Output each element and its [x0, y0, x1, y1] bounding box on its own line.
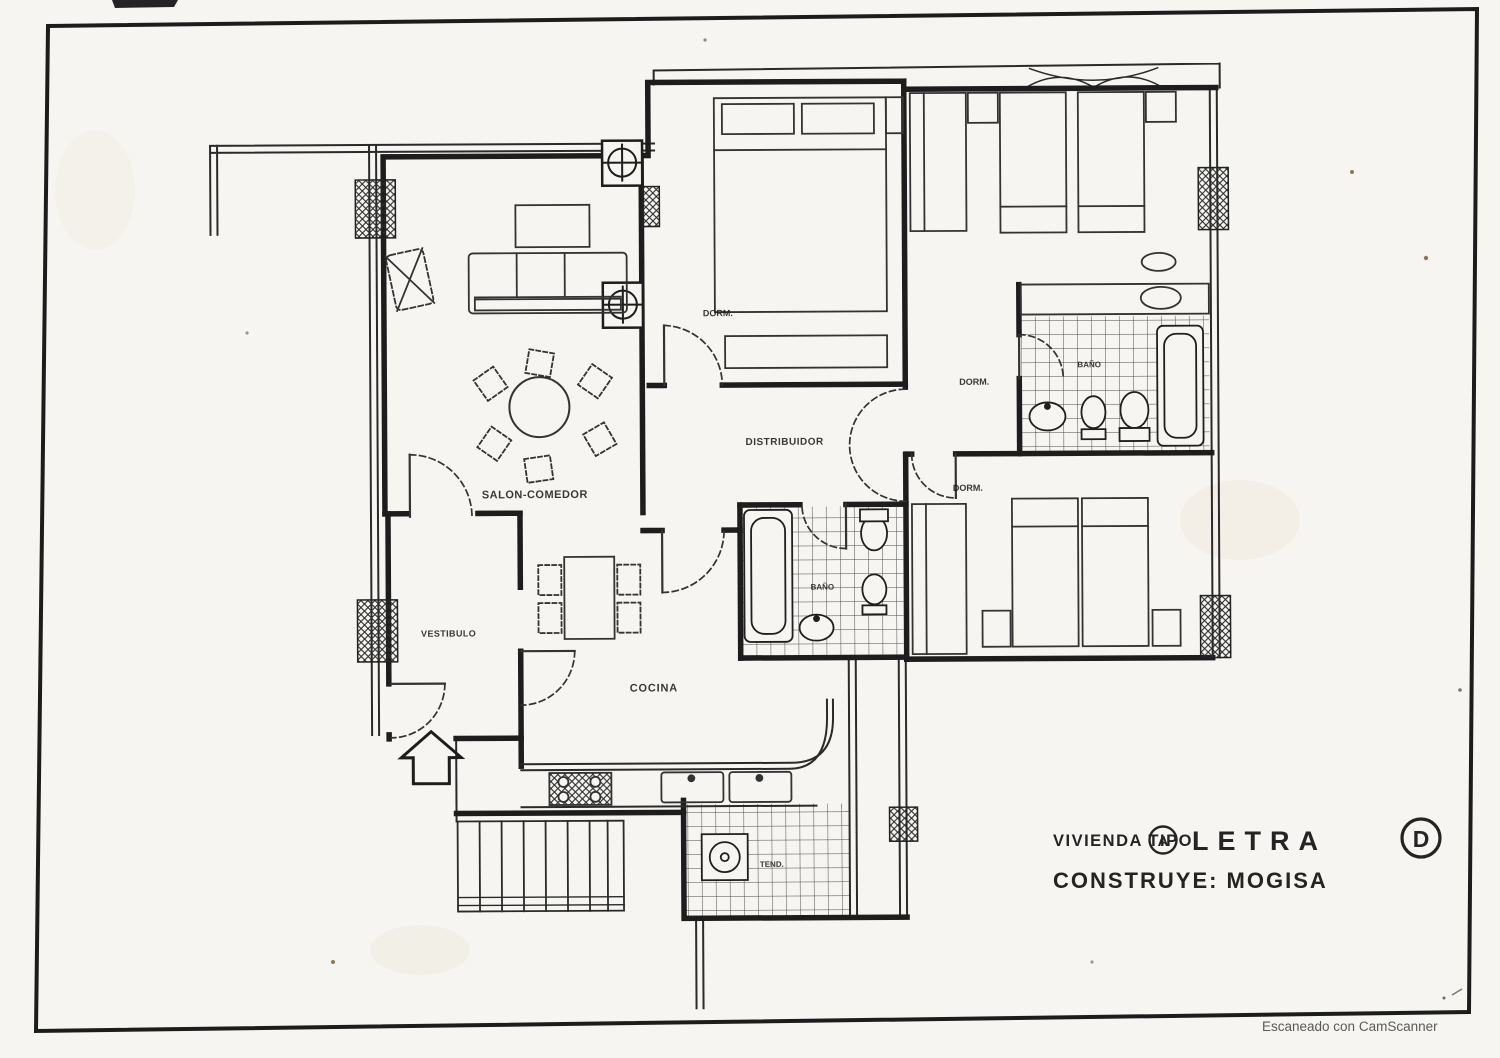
bidet-icon	[862, 574, 886, 614]
single-bed	[1000, 92, 1067, 232]
single-bed	[1012, 498, 1079, 646]
title-block: VIVIENDA TIPO A LETRA D CONSTRUYE: MOGIS…	[1053, 819, 1440, 893]
toilet-icon	[860, 509, 888, 550]
pen-mark	[112, 0, 178, 8]
kitchen-table	[564, 557, 614, 639]
scanned-floorplan-page: SALON-COMEDOR DISTRIBUIDOR COCINA VESTIB…	[0, 0, 1500, 1058]
pillar	[1200, 595, 1230, 657]
bathtub-icon	[744, 510, 793, 642]
nightstand	[982, 611, 1010, 647]
tendedero-fixtures	[702, 834, 748, 880]
room-label-bano1: BAÑO	[1077, 360, 1101, 369]
dwelling-type-label: VIVIENDA TIPO	[1053, 832, 1193, 850]
nightstand	[1146, 92, 1176, 122]
room-label-salon: SALON-COMEDOR	[482, 489, 588, 502]
wardrobe	[912, 504, 967, 654]
dresser	[725, 335, 887, 368]
room-label-distribuidor: DISTRIBUIDOR	[745, 437, 824, 448]
nightstand	[1152, 610, 1180, 646]
bathtub-icon	[1157, 326, 1204, 446]
builder-line: CONSTRUYE: MOGISA	[1053, 868, 1328, 893]
dining-table-round	[473, 349, 616, 483]
pillar	[1198, 167, 1228, 229]
bidet-icon	[1081, 396, 1105, 439]
sink-icon	[799, 615, 833, 641]
bedroom3-furniture	[912, 498, 1181, 654]
stairs	[458, 821, 624, 912]
living-room-furniture	[385, 205, 628, 484]
nightstand	[886, 97, 903, 133]
vent-shafts	[602, 141, 643, 328]
vent-shaft-icon	[602, 141, 642, 186]
bedroom1-furniture	[714, 97, 904, 368]
wardrobe	[910, 93, 967, 231]
room-label-dorm1: DORM.	[703, 308, 733, 318]
room-label-tendedero: TEND.	[760, 860, 784, 869]
pillar	[890, 807, 918, 841]
single-bed	[1078, 92, 1145, 232]
camscanner-watermark: Escaneado con CamScanner	[1262, 1019, 1438, 1034]
coffee-table	[515, 205, 589, 247]
kitchen-chairs	[538, 565, 640, 634]
room-label-vestibulo: VESTIBULO	[421, 628, 476, 638]
sink-icon	[1029, 402, 1065, 430]
letter-value: D	[1413, 826, 1430, 852]
room-label-dorm2: DORM.	[959, 377, 989, 387]
stove-icon	[549, 773, 611, 805]
letter-label: LETRA	[1192, 826, 1327, 856]
room-label-cocina: COCINA	[630, 682, 678, 694]
nightstand	[968, 93, 998, 123]
room-label-bano2: BAÑO	[811, 583, 835, 592]
pillar	[357, 600, 397, 662]
dwelling-type-value: A	[1158, 833, 1169, 850]
floor-plan-canvas: SALON-COMEDOR DISTRIBUIDOR COCINA VESTIB…	[0, 0, 1500, 1058]
pillar	[355, 180, 395, 238]
single-bed	[1082, 498, 1149, 646]
washing-machine-icon	[702, 834, 748, 880]
vanity-counter	[1021, 253, 1209, 315]
room-label-dorm3: DORM.	[953, 483, 983, 493]
toilet-icon	[1119, 392, 1149, 441]
wall-hatch	[642, 186, 659, 226]
stool	[1142, 253, 1176, 271]
entry-arrow-icon	[401, 732, 461, 784]
window-marks	[1028, 68, 1160, 87]
bedroom2-furniture	[910, 92, 1209, 316]
armchair	[385, 248, 434, 311]
double-bed	[714, 97, 887, 312]
vent-shaft-icon	[603, 283, 643, 328]
